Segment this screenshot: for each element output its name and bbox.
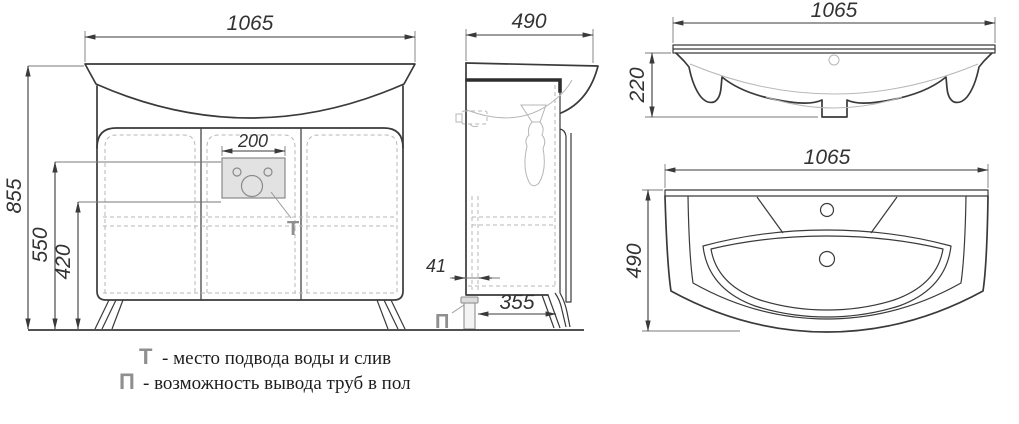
technical-drawing-vanity: Т 1065 855 550 420	[0, 0, 1019, 424]
side-view: П 490 41 355	[426, 10, 598, 333]
front-width-label: 1065	[227, 12, 274, 35]
side-drain-trap-hidden	[521, 105, 546, 186]
plan-drain-hole	[820, 252, 835, 267]
supply-panel	[222, 158, 285, 198]
basin-front-height-label: 220	[626, 67, 649, 103]
front-view: Т 1065 855 550 420	[3, 12, 415, 329]
legend-t-text: - место подвода воды и слив	[162, 348, 391, 369]
plan-crease-left	[757, 197, 783, 233]
basin-bowl-hidden-curve	[766, 97, 902, 108]
basin-front-view: 1065 220	[626, 0, 995, 117]
side-counter-edge	[467, 80, 560, 91]
basin-front-width-dimension: 1065	[673, 0, 995, 43]
front-supply-height-label: 550	[29, 227, 52, 262]
basin-inner-hidden-curve	[690, 64, 978, 94]
front-width-dimension: 1065	[85, 12, 415, 62]
side-valve-fitting-hidden	[456, 111, 487, 127]
legend: Т - место подвода воды и слив П - возмож…	[119, 344, 411, 394]
front-total-height-label: 855	[3, 178, 26, 213]
side-bowl-underside-hidden	[467, 80, 572, 118]
basin-faucet-hole-hidden	[829, 55, 839, 65]
door-right-hidden-outline	[307, 135, 397, 293]
front-lower-height-label: 420	[52, 244, 75, 279]
legend-p-text: - возможность вывода труб в пол	[143, 373, 411, 394]
plan-inner-deck	[688, 196, 966, 319]
door-left-hidden-outline	[105, 135, 195, 293]
front-legs	[95, 300, 405, 329]
legend-t-symbol: Т	[139, 344, 153, 369]
plan-width-label: 1065	[804, 146, 851, 169]
side-back-gap-dimension: 41	[426, 256, 500, 278]
basin-body-outline	[676, 53, 992, 117]
p-marker-leader	[452, 305, 464, 313]
t-marker: Т	[287, 218, 299, 240]
legend-p-symbol: П	[119, 369, 135, 394]
floor-pipe	[461, 297, 478, 329]
side-back-gap-label: 41	[426, 256, 446, 276]
basin-front-width-label: 1065	[811, 0, 858, 22]
plan-depth-label: 490	[623, 243, 646, 278]
front-basin-outline	[85, 64, 415, 118]
plan-bowl-inner	[711, 236, 943, 310]
plan-depth-dimension: 490	[623, 190, 740, 331]
plan-crease-right	[871, 197, 897, 233]
basin-plan-view: 1065 490	[623, 146, 988, 332]
plan-width-dimension: 1065	[665, 146, 988, 188]
side-depth-dimension: 490	[466, 10, 593, 63]
front-total-height-dimension: 855	[3, 66, 84, 329]
side-pipe-offset-label: 355	[499, 291, 534, 314]
side-door-panel	[560, 129, 571, 302]
drawing-canvas: Т 1065 855 550 420	[0, 0, 1019, 424]
plan-faucet-hole	[821, 204, 834, 217]
side-depth-label: 490	[511, 10, 546, 33]
panel-width-label: 200	[237, 131, 268, 151]
front-lower-height-dimension: 420	[52, 202, 221, 329]
plan-back-rim	[665, 190, 988, 196]
